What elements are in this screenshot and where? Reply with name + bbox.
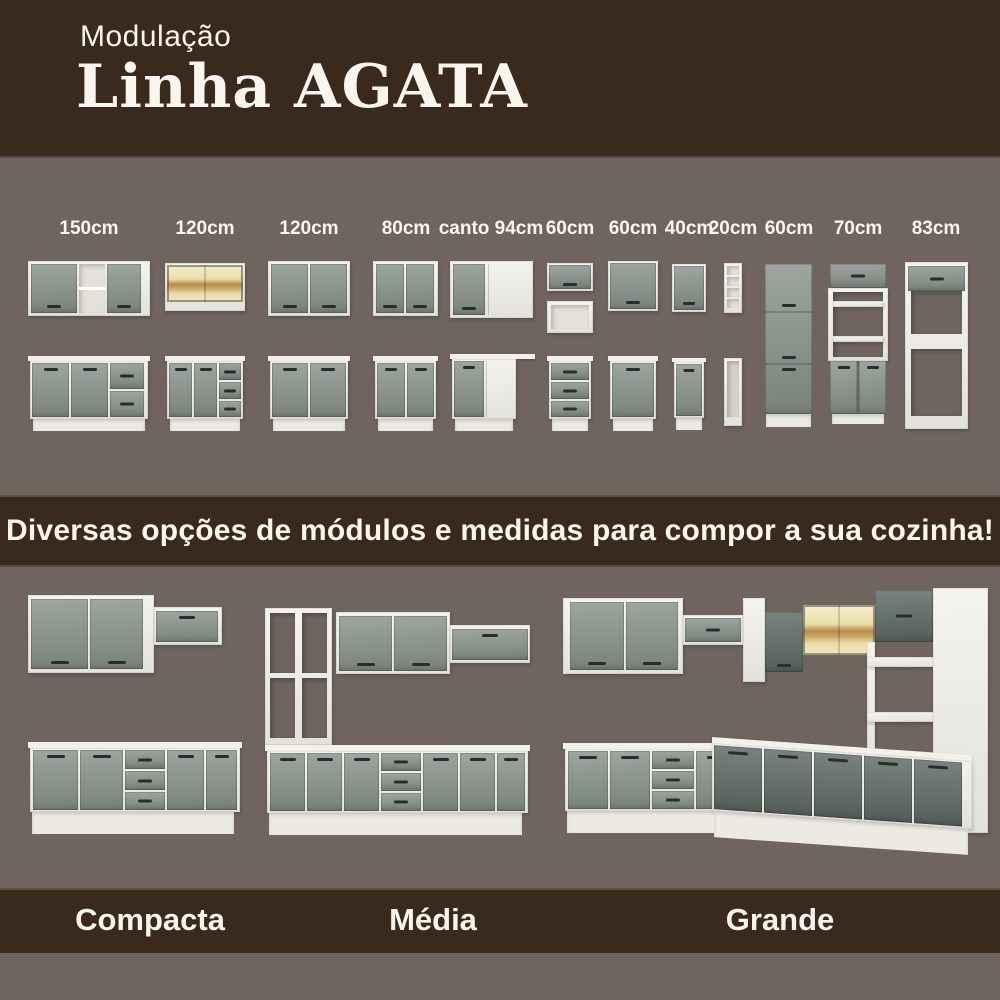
module-120cm-glass-wall-cabinet — [165, 263, 245, 311]
module-size-label: 120cm — [150, 218, 260, 240]
cabinet-door — [610, 751, 650, 809]
wall-cabinet — [563, 598, 683, 674]
cabinet-handle — [896, 615, 912, 618]
cabinet-handle — [828, 758, 848, 762]
module-size-label: 150cm — [34, 218, 144, 240]
cabinet-door — [610, 263, 656, 309]
cabinet-handle — [706, 629, 720, 632]
drawer-handle — [563, 389, 577, 392]
drawer-handle — [666, 759, 680, 762]
cabinet-door — [830, 264, 886, 288]
module-120cm-base-cabinet — [165, 356, 245, 431]
cabinet-door — [194, 363, 217, 417]
module-60cm-base-door — [608, 356, 658, 431]
cabinet-door — [272, 363, 308, 417]
module-60cm-tall-cabinet — [765, 264, 812, 429]
module-60cm-wall-cabinet — [547, 263, 593, 291]
open-compartment — [302, 678, 327, 738]
drawer — [551, 401, 589, 417]
cabinet-handle — [357, 663, 375, 666]
cabinet-door — [339, 616, 392, 671]
kitchen-label-media: Média — [333, 902, 533, 938]
cabinet-door — [714, 745, 762, 812]
cabinet-handle — [117, 305, 131, 308]
cabinet-door — [570, 602, 624, 670]
cabinet-handle — [51, 661, 69, 664]
cabinet-handle — [563, 283, 577, 286]
plinth — [832, 414, 884, 424]
cabinet-handle — [867, 366, 879, 369]
cabinet-door — [626, 602, 678, 670]
cabinet-handle — [621, 756, 639, 759]
drawer-handle — [138, 800, 152, 803]
cabinet-handle — [385, 368, 397, 371]
cabinet-door — [394, 616, 447, 671]
cabinet-handle — [178, 755, 194, 758]
cabinet-door — [549, 265, 591, 289]
shelf-opening — [727, 299, 739, 308]
shelf-opening — [727, 266, 739, 275]
drawer-handle — [224, 370, 236, 373]
cabinet-handle — [643, 662, 661, 665]
cabinet-handle — [47, 755, 65, 758]
cabinet-body — [452, 359, 516, 419]
cabinet-door — [685, 618, 741, 642]
module-80cm-base-cabinet — [373, 356, 438, 431]
cabinet-body — [270, 361, 348, 419]
cabinet-door — [764, 749, 812, 816]
cabinet-body — [30, 361, 148, 419]
glass-divider — [204, 265, 206, 302]
cabinet-handle — [283, 368, 297, 371]
cabinet-door — [307, 753, 342, 811]
base-cabinet-run — [265, 745, 530, 837]
page-title: Linha AGATA — [76, 52, 528, 122]
cabinet-door — [206, 750, 237, 810]
wall-cabinet-step — [683, 615, 743, 645]
cabinet-handle — [930, 277, 944, 280]
plinth — [273, 419, 345, 431]
open-compartment — [302, 613, 327, 673]
module-canto-94cm-wall-cabinet — [450, 261, 533, 318]
drawer-handle — [120, 403, 134, 406]
cabinet-handle — [108, 661, 126, 664]
module-120cm-base-cabinet-doors — [268, 356, 350, 431]
drawer — [125, 750, 165, 769]
drawer-handle — [666, 799, 680, 802]
door-seam — [765, 311, 812, 313]
module-40cm-wall-cabinet — [672, 264, 706, 312]
footer-band: Compacta Média Grande — [0, 890, 1000, 953]
cabinet-door — [875, 590, 933, 642]
open-compartment — [270, 613, 295, 673]
cabinet-body — [674, 362, 704, 418]
module-150cm-base-cabinet — [28, 356, 150, 431]
cabinet-handle — [851, 275, 865, 278]
drawer — [652, 751, 694, 769]
cabinet-door — [167, 750, 204, 810]
plinth — [269, 813, 522, 835]
drawer — [110, 391, 144, 417]
cabinet-handle — [462, 307, 476, 310]
plinth — [613, 419, 653, 431]
cabinet-door — [407, 363, 434, 417]
corner-panel — [743, 598, 765, 682]
cabinet-handle — [215, 755, 229, 758]
glass-divider — [838, 605, 840, 655]
drawer-handle — [394, 781, 408, 784]
module-20cm-base-open — [724, 358, 742, 426]
kitchen-label-grande: Grande — [680, 902, 880, 938]
cabinet-handle — [878, 762, 898, 766]
cabinet-handle — [782, 304, 796, 307]
wall-cabinet-step — [154, 607, 222, 645]
plinth — [170, 419, 240, 431]
cabinet-door — [107, 264, 141, 313]
drawer-handle — [224, 408, 236, 411]
module-canto-94cm-base-cabinet — [450, 354, 535, 431]
cabinet-door — [497, 753, 525, 811]
cabinet-handle — [321, 368, 335, 371]
shelf — [867, 712, 935, 722]
cabinet-handle — [782, 356, 796, 359]
module-80cm-wall-cabinet — [373, 261, 438, 316]
wall-cabinet-step — [450, 625, 530, 663]
cabinet-handle — [412, 663, 430, 666]
module-60cm-wall-cabinet-single — [608, 261, 658, 311]
base-cabinet-run-right — [712, 737, 972, 859]
glass-wall-cabinet — [803, 605, 875, 655]
cabinet-handle — [283, 305, 297, 308]
cabinet-door — [814, 752, 862, 819]
cabinet-handle — [413, 305, 427, 308]
plinth — [32, 812, 234, 834]
cabinet-door — [310, 363, 346, 417]
module-20cm-wall-shelf — [724, 263, 742, 313]
plinth — [552, 419, 588, 431]
cabinet-door — [765, 612, 803, 672]
cabinet-body — [167, 361, 243, 419]
cabinet-handle — [415, 368, 427, 371]
cabinet-door — [908, 266, 965, 291]
cabinet-handle — [482, 634, 498, 637]
wall-cabinet — [28, 595, 154, 673]
plinth — [455, 419, 513, 431]
cabinet-body — [610, 361, 656, 419]
open-shelf — [79, 264, 105, 313]
cabinet-door — [156, 611, 218, 642]
cabinet-handle — [777, 664, 791, 667]
module-size-label: 83cm — [881, 218, 991, 240]
drawer — [652, 771, 694, 789]
cabinet-door — [169, 363, 192, 417]
drawer — [381, 773, 421, 791]
module-size-label: 120cm — [254, 218, 364, 240]
cabinet-door — [830, 361, 857, 414]
shelf — [833, 336, 883, 342]
drawer-handle — [394, 761, 408, 764]
cabinet-handle — [83, 368, 97, 371]
cabinet-door — [612, 363, 654, 417]
header: Modulação Linha AGATA — [0, 0, 1000, 156]
module-60cm-open-niche — [547, 301, 593, 333]
cabinet-door — [406, 264, 434, 313]
cabinet-door — [310, 264, 347, 313]
cabinet-handle — [354, 758, 370, 761]
promo-image: Modulação Linha AGATA 150cm 120cm 120cm … — [0, 0, 1000, 1000]
drawer — [551, 363, 589, 380]
cabinet-door — [71, 363, 108, 417]
drawer — [551, 382, 589, 399]
drawer — [110, 363, 144, 389]
cabinet-door — [452, 629, 528, 660]
shelf — [79, 287, 105, 290]
cabinet-body — [30, 748, 240, 812]
cabinet-door — [454, 361, 484, 417]
drawer — [219, 382, 241, 399]
cabinet-handle — [626, 301, 640, 304]
module-150cm-wall-cabinet — [28, 261, 150, 316]
cabinet-handle — [200, 368, 212, 371]
cabinet-handle — [778, 755, 798, 759]
cabinet-handle — [782, 368, 796, 371]
door-seam — [765, 363, 812, 365]
plinth — [676, 418, 702, 430]
cabinet-body — [375, 361, 436, 419]
shelf — [833, 301, 883, 307]
module-70cm-oven-tower — [828, 264, 888, 426]
cabinet-door — [674, 266, 704, 310]
header-kicker: Modulação — [80, 20, 231, 54]
banner-text: Diversas opções de módulos e medidas par… — [0, 514, 1000, 548]
cabinet-body — [828, 288, 888, 361]
drawer — [219, 363, 241, 380]
drawer — [381, 753, 421, 771]
cabinet-door — [31, 599, 88, 669]
drawer-handle — [563, 408, 577, 411]
open-compartment — [911, 349, 962, 416]
drawer-handle — [138, 758, 152, 761]
panel-seam — [486, 361, 487, 417]
module-83cm-fridge-surround — [905, 262, 968, 429]
modulation-section: 150cm 120cm 120cm 80cm canto 94cm 60cm 6… — [0, 156, 1000, 497]
cabinet-handle — [280, 758, 296, 761]
shelf-opening — [727, 288, 739, 297]
module-120cm-wall-cabinet — [268, 261, 350, 316]
cabinet-door — [90, 599, 143, 669]
cabinet-door — [859, 361, 886, 414]
cabinet-door — [423, 753, 458, 811]
cabinet-handle — [317, 758, 333, 761]
cabinet-handle — [44, 368, 58, 371]
drawer — [652, 791, 694, 809]
panel-seam — [488, 264, 489, 315]
base-cabinet-run — [28, 742, 242, 838]
cabinet-door — [32, 363, 69, 417]
open-compartment — [270, 678, 295, 738]
module-60cm-base-drawers — [547, 356, 593, 431]
drawer — [125, 771, 165, 790]
cabinet-door — [80, 750, 123, 810]
cabinet-door — [344, 753, 379, 811]
drawer-handle — [224, 389, 236, 392]
cabinet-handle — [683, 302, 695, 305]
kitchen-label-compacta: Compacta — [50, 902, 250, 938]
cabinet-door — [377, 363, 405, 417]
cabinet-door — [270, 753, 305, 811]
drawer-handle — [666, 779, 680, 782]
cabinet-handle — [470, 758, 486, 761]
cabinet-handle — [175, 368, 187, 371]
drawer-handle — [563, 370, 577, 373]
cabinet-handle — [322, 305, 336, 308]
cabinet-door — [376, 264, 404, 313]
cabinet-door — [864, 756, 912, 823]
tall-open-tower — [265, 608, 332, 745]
drawer-handle — [138, 779, 152, 782]
cabinet-door — [765, 264, 812, 414]
cabinet-handle — [588, 662, 606, 665]
cabinet-handle — [504, 758, 518, 761]
plinth — [378, 419, 433, 431]
cabinet-door — [460, 753, 495, 811]
kitchens-section — [0, 565, 1000, 890]
shelf-opening — [727, 361, 739, 417]
drawer — [381, 793, 421, 811]
cabinet-door — [271, 264, 308, 313]
cabinet-door — [676, 364, 702, 416]
open-compartment — [911, 291, 962, 334]
cabinet-door — [568, 751, 608, 809]
module-40cm-base-cabinet — [672, 358, 706, 430]
glass-door-panel — [167, 265, 243, 302]
plinth — [33, 419, 145, 431]
drawer-handle — [394, 801, 408, 804]
drawer — [219, 401, 241, 417]
cabinet-body — [549, 361, 591, 419]
plinth — [766, 414, 811, 427]
cabinet-door — [31, 264, 77, 313]
shelf — [867, 657, 935, 667]
cabinet-handle — [463, 366, 475, 369]
drawer-handle — [120, 375, 134, 378]
drawer — [125, 792, 165, 810]
cabinet-body — [267, 751, 528, 813]
cabinet-handle — [433, 758, 449, 761]
cabinet-handle — [684, 369, 695, 372]
cabinet-door — [33, 750, 78, 810]
cabinet-handle — [383, 305, 397, 308]
wall-cabinet — [336, 612, 450, 674]
shelf-opening — [727, 277, 739, 286]
cabinet-handle — [928, 765, 948, 769]
cabinet-handle — [728, 751, 748, 755]
cabinet-handle — [179, 616, 195, 619]
cabinet-handle — [626, 368, 640, 371]
banner: Diversas opções de módulos e medidas par… — [0, 497, 1000, 565]
cabinet-door — [914, 759, 962, 826]
cabinet-handle — [93, 755, 111, 758]
cabinet-handle — [838, 366, 850, 369]
cabinet-handle — [47, 305, 61, 308]
cabinet-door — [453, 264, 485, 315]
cabinet-handle — [579, 756, 597, 759]
niche-opening — [551, 305, 589, 329]
